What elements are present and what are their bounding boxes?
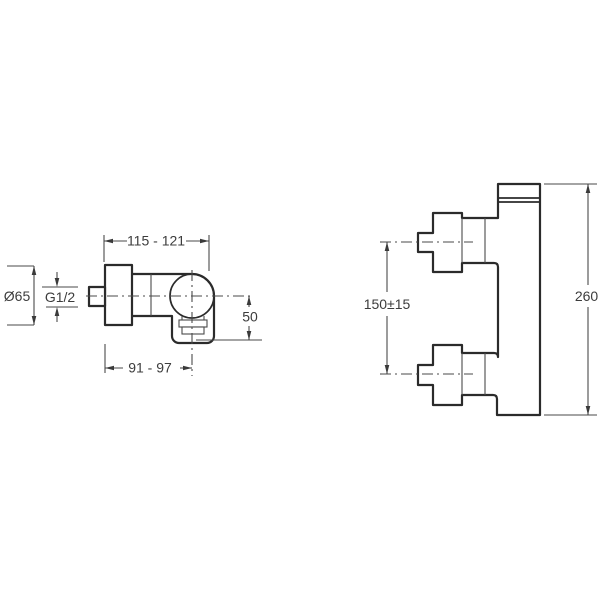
side-view-drawing: 115 - 121 Ø65 G1/2 [4, 233, 262, 377]
dim-label-width-range: 115 - 121 [127, 233, 185, 249]
dim-label-inlet-spacing: 150±15 [364, 296, 411, 312]
dimension-flange-diameter: Ø65 [4, 266, 37, 325]
mixer-body-outline [418, 184, 540, 415]
dim-label-inlet-thread: G1/2 [45, 289, 76, 305]
technical-drawing-page: 115 - 121 Ø65 G1/2 [0, 0, 600, 600]
dimension-inlet-thread: G1/2 [42, 272, 78, 322]
dimension-inlet-spacing: 150±15 [364, 242, 411, 374]
dim-label-overall-height: 260 [575, 288, 599, 304]
dimension-overall-height: 260 [544, 184, 598, 415]
dimension-outlet-drop: 50 [196, 296, 262, 340]
wall-flange [105, 265, 132, 325]
front-view-drawing: 150±15 260 [364, 184, 599, 415]
cap-separation-lines [498, 198, 540, 202]
dim-label-outlet-drop: 50 [242, 309, 258, 325]
dimension-depth-to-axis: 91 - 97 [105, 344, 192, 376]
dim-label-depth-to-axis: 91 - 97 [128, 360, 172, 376]
dim-label-flange-diameter: Ø65 [4, 288, 31, 304]
drawing-canvas: 115 - 121 Ø65 G1/2 [0, 0, 600, 600]
